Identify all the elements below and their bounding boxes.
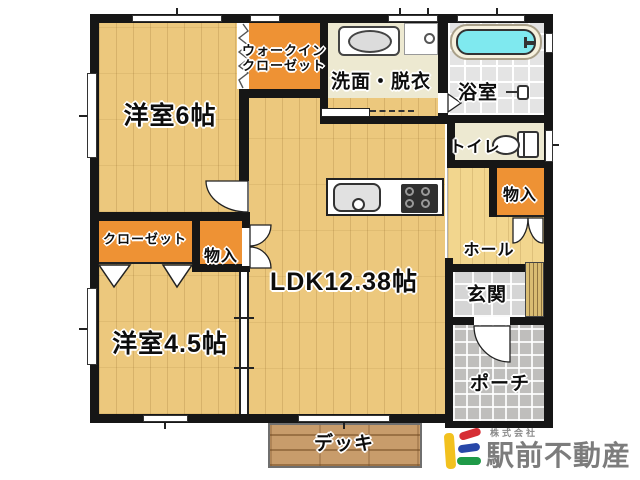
- toilet-tank-icon: [517, 131, 539, 158]
- wall-ldk-right: [445, 258, 453, 428]
- room-ldk-floor: [248, 98, 445, 415]
- window-senmen-top: [388, 15, 438, 22]
- stove-burner-icon: [405, 199, 414, 208]
- room-label-deck: デッキ: [314, 429, 374, 456]
- senmen-sliding-track: [370, 110, 414, 112]
- wall-yoshitsu6-bottom: [90, 212, 250, 221]
- logo-blue-bar-icon: [458, 443, 481, 454]
- room-label-yoshitsu45: 洋室4.5帖: [112, 324, 228, 360]
- logo-yellow-bar-icon: [444, 433, 456, 470]
- room-label-bath: 浴室: [458, 78, 498, 105]
- partition-tick-1: [234, 317, 254, 319]
- room-label-toilet: トイレ: [449, 133, 500, 157]
- room-label-hall: ホール: [463, 236, 514, 260]
- window-tick: [164, 423, 166, 429]
- room-label-closet: クローゼット: [103, 232, 187, 247]
- shower-icon: [517, 85, 529, 100]
- logo-green-bar-icon: [457, 457, 481, 465]
- wall-monoire-hall-left: [489, 168, 497, 217]
- window-wic-top: [250, 15, 280, 22]
- wall-bath-bottom: [438, 115, 553, 123]
- window-tick: [176, 8, 178, 15]
- wall-genkan-bottom-right: [509, 317, 553, 325]
- room-label-monoire-hall: 物入: [503, 181, 537, 205]
- ldk-yoshitsu45-sliding-partition: [239, 272, 249, 414]
- shower-icon: [506, 91, 517, 93]
- company-name: 駅前不動産: [486, 434, 631, 474]
- wall-right: [544, 14, 553, 428]
- senmen-sliding-door: [321, 108, 370, 117]
- wall-toilet-bottom: [447, 160, 553, 168]
- logo-red-bar-icon: [458, 427, 481, 441]
- room-label-wic: ウォークイン クローゼット: [242, 43, 326, 73]
- washer-faucet-icon: [424, 33, 435, 44]
- wic-label-line1: ウォークイン: [242, 43, 326, 58]
- stove-burner-icon: [405, 187, 414, 196]
- window-yoshitsu45-left: [87, 288, 97, 365]
- stove-burner-icon: [421, 199, 430, 208]
- wall-wic-bottom: [243, 89, 328, 98]
- window-toilet-right: [545, 130, 553, 162]
- wall-genkan-bottom-left: [445, 317, 475, 325]
- window-tick: [79, 328, 87, 330]
- window-tick: [427, 8, 429, 15]
- window-ldk-bottom: [298, 415, 390, 422]
- wall-closet-post: [192, 212, 200, 272]
- room-label-yoshitsu6: 洋室6帖: [124, 96, 217, 132]
- bathtub-faucet-icon: [527, 41, 534, 45]
- floorplan-canvas: 洋室6帖 ウォークイン クローゼット 洗面・脱衣 浴室 トイレ 物入 物入 クロ…: [0, 0, 640, 480]
- room-label-porch: ポーチ: [470, 369, 530, 396]
- room-label-senmen: 洗面・脱衣: [331, 67, 431, 94]
- toilet-tank-line: [523, 133, 525, 156]
- room-label-genkan: 玄関: [467, 280, 507, 307]
- window-yoshitsu6-top: [132, 15, 222, 22]
- window-yoshitsu45-bottom: [143, 415, 188, 422]
- window-tick: [496, 8, 498, 15]
- wall-genkan-top: [448, 264, 526, 272]
- room-label-monoire-center: 物入: [204, 242, 238, 266]
- stove-burner-icon: [421, 187, 430, 196]
- partition-tick-2: [234, 367, 254, 369]
- opening-bath-door: [438, 93, 448, 113]
- window-bath-top: [457, 15, 525, 22]
- room-label-ldk: LDK12.38帖: [270, 262, 418, 298]
- wall-senmen-bottom: [320, 116, 448, 124]
- ldk-hall-seam: [447, 168, 448, 264]
- window-tick: [399, 8, 401, 15]
- window-bath-right: [545, 33, 553, 53]
- wic-label-line2: クローゼット: [242, 58, 326, 73]
- shoe-cabinet: [525, 262, 544, 317]
- washbasin-bowl-icon: [348, 30, 392, 53]
- opening-yoshitsu6-door: [239, 181, 249, 212]
- kitchen-sink-drain-icon: [352, 198, 365, 211]
- window-yoshitsu6-left: [87, 73, 97, 158]
- window-tick: [79, 115, 87, 117]
- company-logo: 株式会社 駅前不動産: [440, 423, 640, 475]
- opening-monoire-center-door: [242, 228, 250, 266]
- window-tick: [553, 144, 559, 146]
- opening-entrance-door: [474, 317, 510, 325]
